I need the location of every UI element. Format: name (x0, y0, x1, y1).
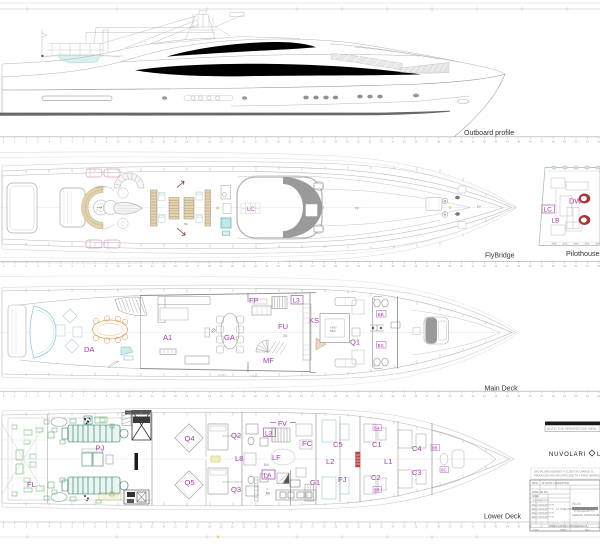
svg-text:G1: G1 (310, 478, 320, 487)
svg-text:10.40 m: 10.40 m (218, 374, 227, 377)
svg-text:FP: FP (249, 296, 259, 305)
svg-text:C1: C1 (372, 440, 382, 449)
svg-text:AB: AB (266, 492, 270, 496)
svg-text:Lower Deck: Lower Deck (484, 514, 521, 521)
svg-text:GA: GA (224, 333, 235, 342)
svg-text:DW: DW (569, 197, 582, 206)
svg-text:LC: LC (247, 207, 255, 213)
svg-text:REV 0 DESCRIPTION: REV 0 DESCRIPTION (532, 505, 554, 507)
svg-text:DISTRIBUTION: DISTRIBUTION (533, 500, 549, 502)
svg-text:FlyBridge: FlyBridge (485, 253, 515, 260)
svg-text:BS: BS (378, 343, 384, 348)
svg-text:DIGITAL BROADSHEET: A CLIENT I: DIGITAL BROADSHEET: A CLIENT IN CHARGE I… (534, 470, 596, 474)
svg-text:REV 2 DESCRIPTION: REV 2 DESCRIPTION (532, 513, 554, 515)
svg-text:BED: BED (330, 329, 336, 333)
svg-text:14 JUNE 2010: 14 JUNE 2010 (556, 507, 573, 511)
svg-text:A1: A1 (163, 333, 172, 342)
svg-text:C5: C5 (333, 440, 343, 449)
svg-text:NUVOLARI: NUVOLARI (549, 452, 586, 458)
svg-text:L3: L3 (293, 298, 301, 305)
svg-text:C3: C3 (412, 468, 422, 477)
svg-text:Q4: Q4 (185, 434, 195, 443)
svg-text:L2: L2 (326, 457, 334, 466)
svg-text:FC: FC (302, 439, 313, 448)
svg-text:SPED. DE MU.: SPED. DE MU. (532, 491, 549, 494)
svg-text:Q5: Q5 (185, 478, 195, 487)
svg-text:8B: 8B (374, 488, 379, 493)
svg-text:REV 3 DESCRIPTION: REV 3 DESCRIPTION (532, 517, 554, 519)
svg-text:8C: 8C (441, 468, 447, 473)
svg-text:NAME: NAME (532, 495, 539, 498)
svg-text:26: 26 (283, 333, 288, 338)
svg-text:FV: FV (278, 421, 287, 428)
svg-text:SPA POOL: SPA POOL (96, 186, 108, 189)
svg-text:SHEET: SHEET (560, 530, 568, 532)
svg-text:Pilothouse: Pilothouse (566, 249, 600, 258)
svg-text:L1: L1 (384, 457, 392, 466)
svg-text:L8: L8 (235, 454, 243, 463)
svg-text:LB: LB (552, 218, 560, 225)
svg-text:C4: C4 (412, 444, 422, 453)
svg-text:PALM: PALM (572, 502, 581, 506)
svg-text:KS: KS (309, 316, 319, 325)
svg-text:FL: FL (27, 480, 36, 489)
svg-text:FU: FU (278, 322, 288, 331)
svg-text:FJ: FJ (338, 475, 347, 484)
svg-text:GENERAL ARRANGEMENT: GENERAL ARRANGEMENT (572, 514, 600, 517)
svg-text:MOD.: MOD. (532, 482, 539, 485)
svg-text:LIMITED EDITION ARRANGEMENT: LIMITED EDITION ARRANGEMENT (548, 525, 587, 528)
svg-text:DA: DA (84, 345, 94, 354)
svg-text:NOTE: THE PERSPECTIVE VIEW...: NOTE: THE PERSPECTIVE VIEW... (547, 427, 599, 431)
svg-text:B4: B4 (264, 462, 270, 467)
svg-text:8A: 8A (374, 426, 379, 431)
svg-text:LA: LA (264, 473, 273, 480)
svg-text:Q2: Q2 (231, 431, 241, 440)
svg-text:DWG: DWG (533, 530, 539, 532)
svg-text:8B: 8B (432, 446, 437, 451)
svg-text:L3: L3 (265, 431, 273, 438)
svg-text:IN SCALE NOT TO: IN SCALE NOT TO (574, 510, 595, 513)
svg-text:BB: BB (378, 312, 384, 317)
svg-text:B2: B2 (185, 222, 189, 226)
svg-text:PRODUCED AND ARCHITECTED TO A: PRODUCED AND ARCHITECTED TO A FIRST IMPR… (534, 474, 600, 478)
svg-text:REV: REV (585, 530, 590, 532)
svg-text:REV 1 DESCRIPTION: REV 1 DESCRIPTION (532, 509, 554, 511)
svg-text:LF: LF (272, 453, 281, 462)
svg-text:Outboard profile: Outboard profile (464, 130, 514, 137)
svg-text:Main Deck: Main Deck (485, 385, 519, 392)
svg-text:M.YACHT CONCEPTION: M.YACHT CONCEPTION (542, 482, 569, 485)
svg-text:=: = (266, 487, 268, 491)
svg-text:MF: MF (263, 356, 274, 365)
svg-text:Q1: Q1 (350, 338, 360, 347)
svg-text:LC: LC (544, 207, 553, 214)
svg-text:Q3: Q3 (231, 485, 241, 494)
